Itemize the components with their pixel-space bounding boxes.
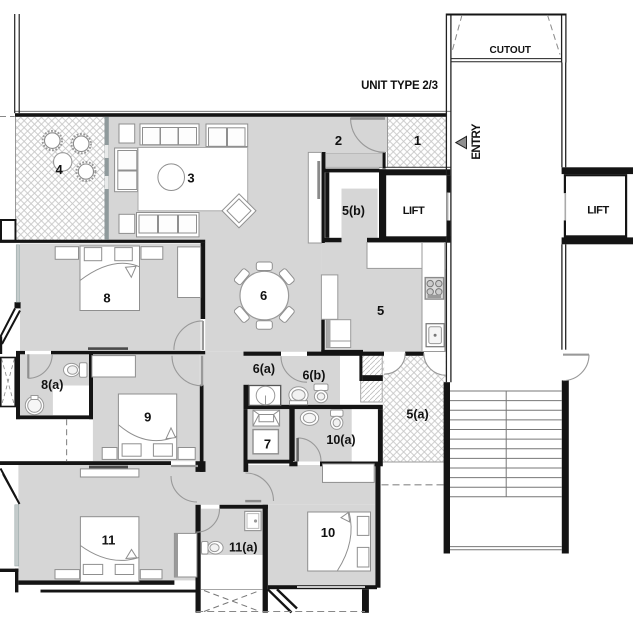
svg-text:8(a): 8(a) [41,378,63,392]
svg-text:6(b): 6(b) [302,369,325,383]
svg-text:11(a): 11(a) [229,541,258,555]
svg-text:UNIT TYPE 2/3: UNIT TYPE 2/3 [361,80,438,92]
svg-text:CUTOUT: CUTOUT [490,45,531,56]
svg-text:7: 7 [264,437,271,452]
svg-text:5: 5 [377,303,384,318]
svg-text:4: 4 [55,162,63,177]
svg-text:10: 10 [321,525,335,540]
svg-text:3: 3 [187,171,194,186]
svg-text:1: 1 [414,133,421,148]
svg-text:5(a): 5(a) [406,408,428,422]
svg-text:5(b): 5(b) [342,204,365,218]
svg-text:LIFT: LIFT [587,205,609,217]
svg-text:6(a): 6(a) [253,362,275,376]
svg-text:11: 11 [102,532,116,547]
svg-text:8: 8 [103,290,110,305]
svg-text:2: 2 [335,133,342,148]
svg-text:LIFT: LIFT [403,205,425,217]
svg-text:10(a): 10(a) [326,433,355,447]
svg-text:9: 9 [144,409,151,424]
svg-text:6: 6 [260,288,267,303]
svg-text:ENTRY: ENTRY [471,123,483,159]
